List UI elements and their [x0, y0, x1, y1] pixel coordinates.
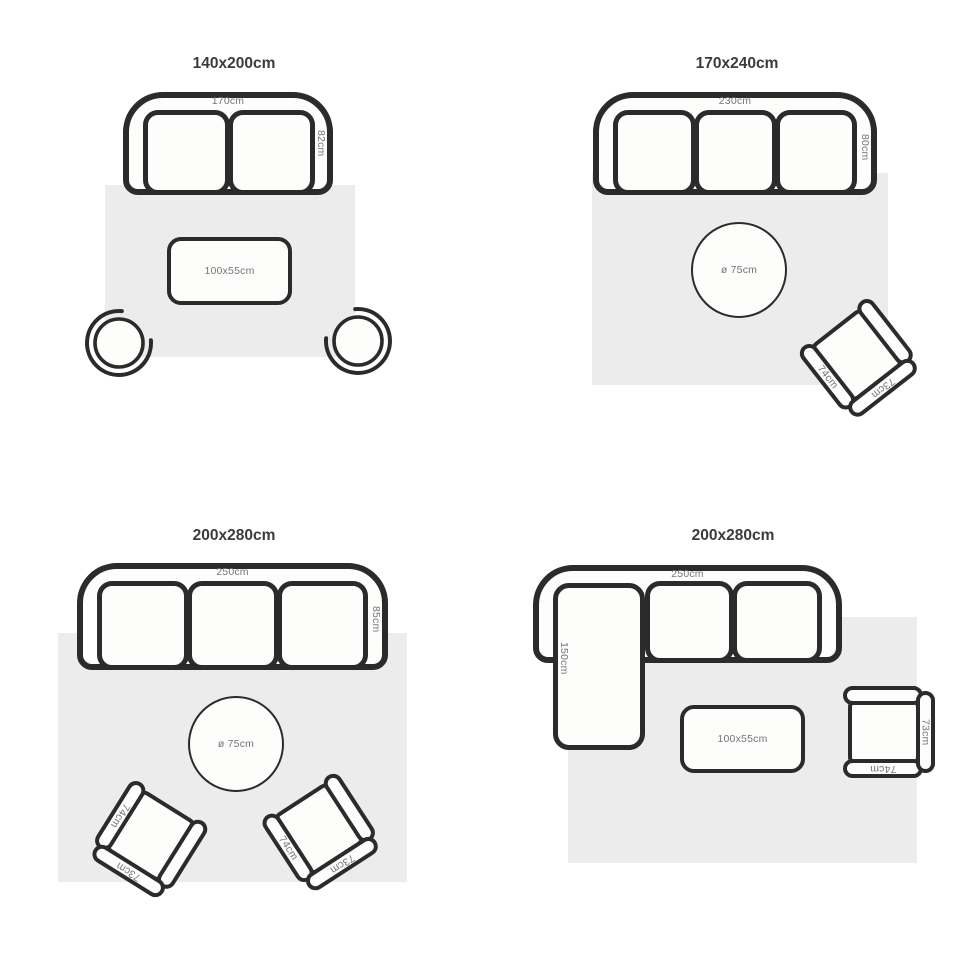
armchair-depth-label: 73cm — [920, 719, 932, 745]
quadrant-200x280-b: 200x280cm 250cm 150cm 100x55cm 74cm 73cm — [0, 0, 970, 970]
chaise-depth-label: 150cm — [558, 642, 570, 675]
coffee-table-size-label: 100x55cm — [717, 733, 767, 745]
coffee-table: 100x55cm — [680, 705, 805, 773]
armchair-bottom-arm: 74cm — [843, 759, 923, 778]
sofa-cushion — [645, 581, 734, 663]
armchair-width-label: 74cm — [870, 763, 896, 775]
sofa-width-label: 250cm — [533, 568, 842, 580]
rug-size-guide-diagram: 140x200cm 170cm 82cm 100x55cm 170x240cm … — [0, 0, 970, 970]
armchair-seat — [848, 698, 920, 766]
rug-size-title: 200x280cm — [692, 527, 775, 545]
armchair-back: 73cm — [916, 691, 935, 773]
armchair-top-arm — [843, 686, 923, 705]
sofa-cushion — [732, 581, 822, 663]
armchair: 74cm 73cm — [843, 686, 935, 778]
